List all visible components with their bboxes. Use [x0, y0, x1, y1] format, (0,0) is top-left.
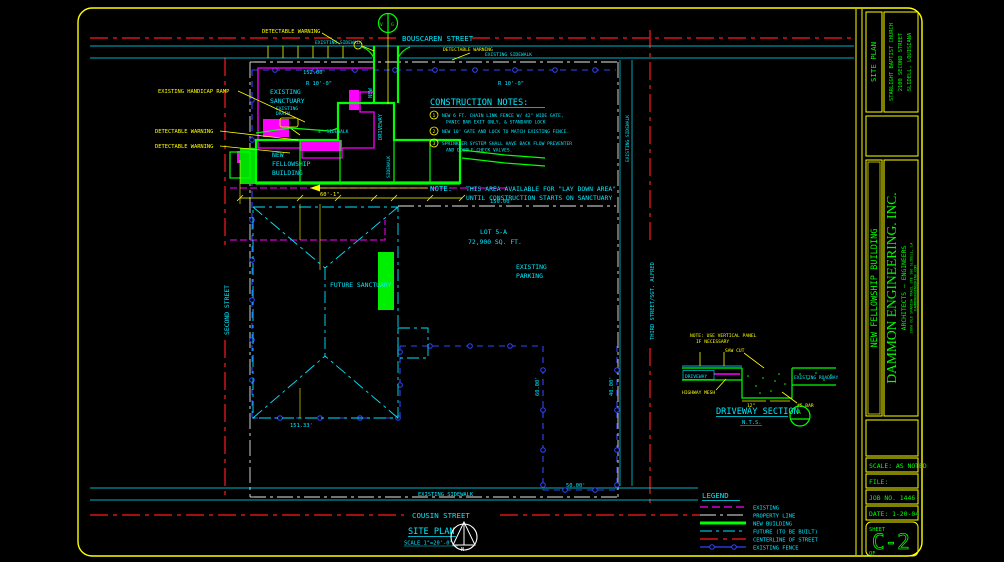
existing-handicap-ramp-label: EXISTING HANDICAP RAMP [158, 89, 229, 95]
note-1-line1: NEW 6 FT. CHAIN LINK FENCE W/ 42" WIDE G… [442, 113, 564, 119]
legend: LEGEND EXISTING PROPERTY LINE NEW BUILDI… [700, 491, 819, 552]
note-num-3: 3 [433, 141, 436, 147]
stamp-box [866, 420, 918, 456]
note-line1: THIS AREA AVAILABLE FOR "LAY DOWN AREA" [466, 185, 616, 193]
tb-project-line2: 2100 SECOND STREET [898, 32, 904, 91]
sidewalk-4ft-label: 4' SIDEWALK [318, 129, 349, 135]
lot-area-label: 72,900 SQ. FT. [468, 238, 522, 246]
dim-60-1: 60'-1" [320, 192, 339, 198]
cad-site-plan-sheet: BOUSCAREN STREET COUSIN STREET SECOND ST… [0, 0, 1004, 562]
note-1-line2: PANIC BAR EXIT ONLY, & STANDARD LOCK [446, 120, 546, 126]
ds-note-line1: NOTE: USE VERTICAL PANEL [690, 333, 757, 339]
laydown-note [310, 185, 428, 192]
tb-of-label: OF [869, 551, 876, 557]
tb-scale: SCALE: AS NOTED [869, 462, 927, 470]
street-label-third: THIRD STREET/SGT. ALFRED [650, 262, 656, 340]
sidewalk-label: SIDEWALK [386, 156, 392, 178]
detectable-warning-label-top: DETECTABLE WARNING [262, 29, 320, 35]
street-label-bouscaren: BOUSCAREN STREET [402, 34, 474, 43]
tb-date: DATE: 1-20-04 [869, 510, 919, 518]
legend-label-property-line: PROPERTY LINE [753, 514, 795, 520]
note-3-line2: AND DOUBLE CHECK VALVES. [446, 148, 512, 154]
detectable-warning-label-top2: DETECTABLE WARNING [443, 47, 493, 53]
existing-sanctuary-label-2: SANCTUARY [270, 97, 305, 105]
legend-title: LEGEND [702, 491, 729, 500]
north-arrow [451, 522, 477, 550]
existing-parking-label-1: EXISTING [516, 263, 547, 271]
future-sanctuary-label: FUTURE SANCTUARY [330, 281, 392, 289]
new-building-label-2: FELLOWSHIP [272, 160, 311, 168]
new-driveway-label-2: DRIVEWAY [378, 113, 384, 140]
lot-label: LOT 5-A [480, 228, 507, 236]
construction-notes: CONSTRUCTION NOTES: 1 NEW 6 FT. CHAIN LI… [430, 98, 572, 154]
valve-letter-g: G [391, 22, 394, 28]
note-3-line1: SPRINKLER SYSTEM SHALL HAVE BACK FLOW PR… [442, 141, 572, 147]
tb-sheet-number: C-2 [872, 530, 910, 554]
ds-saw-cut-label: SAW CUT [725, 348, 745, 354]
north-arrow-letter: N [461, 547, 464, 553]
ds-highway-mesh-label: HIGHWAY MESH [682, 390, 715, 396]
dim-151: 151.33' [290, 423, 313, 429]
existing-sidewalk-label-right: EXISTING SIDEWALK [625, 115, 631, 162]
detectable-warning-label-1: DETECTABLE WARNING [155, 129, 213, 135]
new-driveway-label-1: NEW [368, 88, 374, 98]
revision-box [866, 116, 918, 156]
ds-note-line2: IF NECESSARY [696, 339, 729, 345]
existing-sanctuary-label-1: EXISTING [270, 88, 301, 96]
valve-letter-v: V [380, 22, 383, 28]
driveway-section-detail: NOTE: USE VERTICAL PANEL IF NECESSARY SA… [682, 333, 838, 426]
dim-r10-left: R 10'-0" [306, 81, 332, 87]
construction-notes-title: CONSTRUCTION NOTES: [430, 98, 528, 108]
note-line2: UNTIL CONSTRUCTION STARTS ON SANCTUARY [466, 194, 612, 202]
legend-label-centerline: CENTERLINE OF STREET [753, 538, 819, 544]
tb-sheet-title: SITE PLAN [869, 42, 878, 82]
legend-label-future: FUTURE (TO BE BUILT) [753, 530, 818, 536]
tb-firm-web: DAMMONENGINEERING.COM [914, 264, 918, 310]
existing-parking-label-2: PARKING [516, 272, 543, 280]
tb-project-line3: SLIDELL, LOUISIANA [907, 32, 913, 91]
ds-existing-roadway-label: EXISTING ROADWAY [794, 375, 838, 381]
street-label-cousin: COUSIN STREET [412, 511, 470, 520]
legend-label-new-building: NEW BUILDING [753, 522, 792, 528]
dim-r10-right: R 10'-0" [498, 81, 524, 87]
site-plan-title: SITE PLAN SCALE 1"=20'-0" [404, 527, 458, 547]
ds-title: DRIVEWAY SECTION [716, 407, 799, 417]
dim-60: 60.00' [535, 377, 541, 396]
ds-driveway-label: DRIVEWAY [685, 374, 707, 380]
note-num-1: 1 [433, 113, 436, 119]
tb-file: FILE: [869, 478, 888, 486]
legend-label-existing: EXISTING [753, 506, 779, 512]
note-2-line1: NEW 10' GATE AND LOCK TO MATCH EXISTING … [442, 129, 569, 135]
ds-scale: N.T.S. [742, 420, 761, 426]
dim-50: 50.00' [566, 483, 585, 489]
dim-152: 152.00' [303, 70, 326, 76]
ds-detail-bubble: A [797, 408, 801, 416]
tb-building-name: NEW FELLOWSHIP BUILDING [870, 229, 880, 348]
tb-firm-name: DAMMON ENGINEERING. INC. [884, 192, 899, 383]
legend-label-existing-fence: EXISTING FENCE [753, 546, 798, 552]
site-plan-title-text: SITE PLAN [408, 527, 455, 537]
dim-40: 40.00' [609, 377, 615, 396]
street-label-second: SECOND STREET [223, 285, 231, 335]
tb-job: JOB NO. 1446 [869, 494, 915, 502]
tb-firm-type: ARCHITECTS — ENGINEERS [900, 246, 908, 331]
detectable-warning-label-2: DETECTABLE WARNING [155, 144, 213, 150]
note-num-2: 2 [433, 129, 436, 135]
new-building-label-3: BUILDING [272, 169, 303, 177]
building-dimension-line [237, 160, 465, 418]
tb-project-line1: STARLIGHT BAPTIST CHURCH [889, 23, 895, 101]
site-plan-scale: SCALE 1"=20'-0" [404, 541, 453, 547]
note-label: NOTE: [430, 184, 452, 193]
